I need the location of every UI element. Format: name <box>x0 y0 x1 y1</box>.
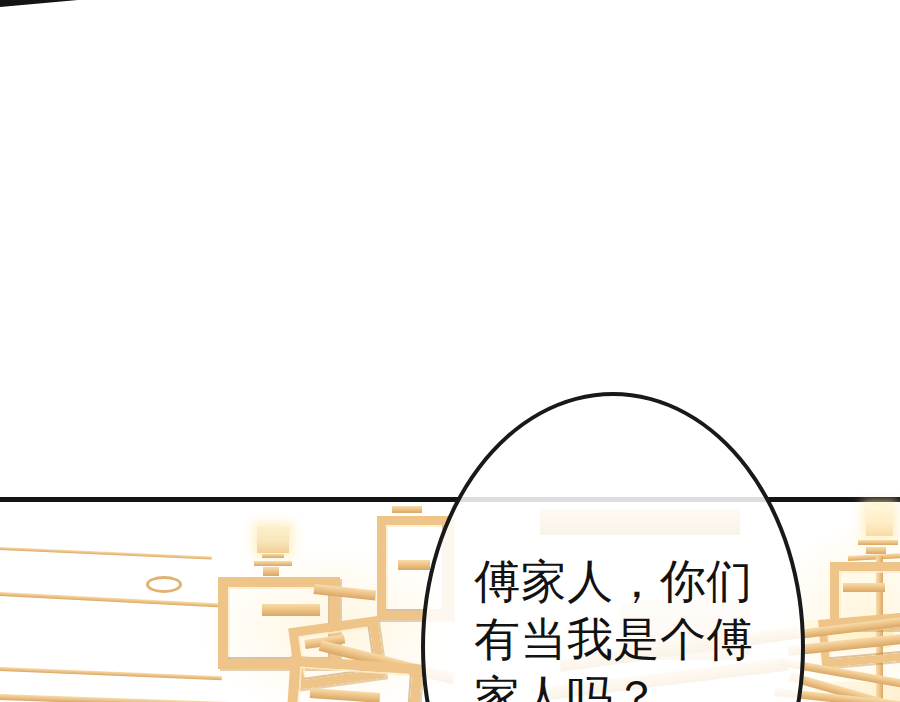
lamp-finial-knob <box>866 547 886 554</box>
speech-line-1: 傅家人，你们 <box>474 552 753 610</box>
speech-line-2: 有当我是个傅 <box>474 610 753 668</box>
lamp-finial-bar <box>262 554 284 558</box>
lamp-finial-bar <box>254 561 292 566</box>
ceiling-line <box>0 667 222 680</box>
comic-panel: 傅家人，你们 有当我是个傅 家人吗？ <box>0 0 900 702</box>
speech-bubble-text: 傅家人，你们 有当我是个傅 家人吗？ <box>474 552 753 702</box>
speech-line-3: 家人吗？ <box>474 668 753 702</box>
ceiling-line <box>0 547 212 560</box>
ceiling-line <box>0 592 222 608</box>
lamp-finial-bar <box>848 553 900 561</box>
lamp-shade <box>866 505 893 536</box>
meander-inner-bar <box>398 560 430 570</box>
ceiling-line <box>0 694 260 702</box>
meander-inner-bar <box>843 583 885 592</box>
lamp-finial-bar <box>392 506 422 513</box>
ceiling-ring <box>146 576 182 593</box>
lamp-shade <box>257 526 289 553</box>
meander-inner-bar <box>262 604 320 616</box>
lamp-finial-bar <box>858 540 898 545</box>
lamp-finial-knob <box>263 567 279 576</box>
